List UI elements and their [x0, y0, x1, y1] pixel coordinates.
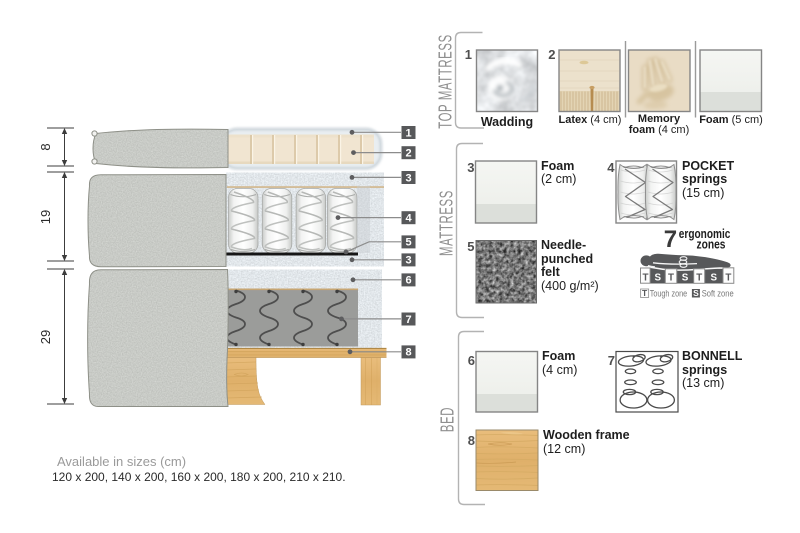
svg-text:zones: zones: [697, 237, 726, 252]
svg-text:7: 7: [664, 226, 677, 253]
